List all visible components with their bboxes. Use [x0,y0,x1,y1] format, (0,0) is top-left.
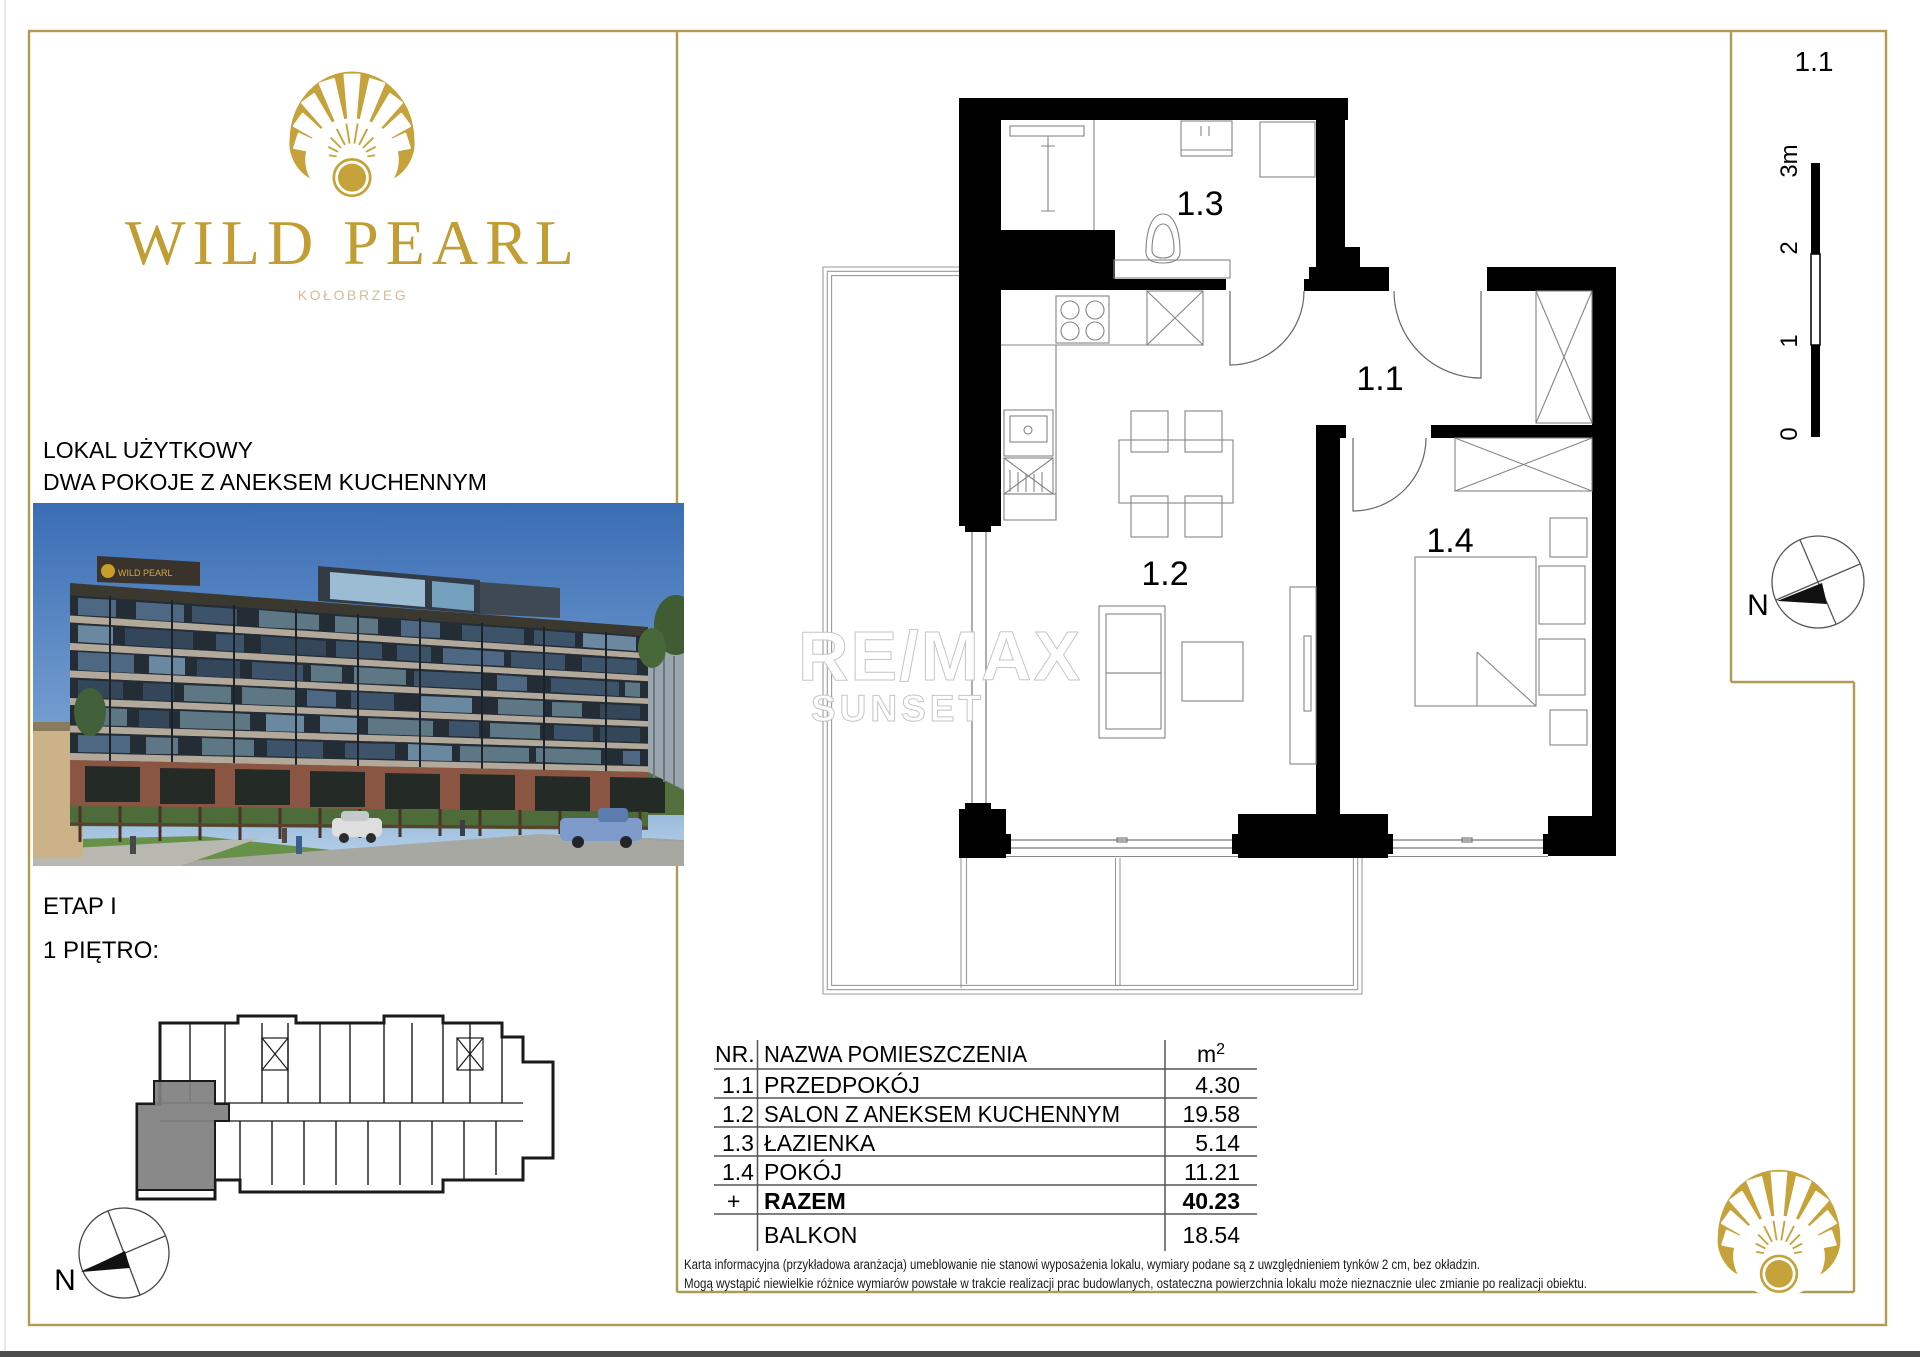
svg-text:1: 1 [1776,334,1803,347]
svg-text:1.2: 1.2 [1141,555,1188,593]
svg-text:Karta informacyjna (przykładow: Karta informacyjna (przykładowa aranżacj… [684,1257,1480,1272]
svg-text:WILD PEARL: WILD PEARL [125,207,581,278]
svg-text:SUNSET: SUNSET [811,688,985,729]
svg-text:0: 0 [1776,427,1803,440]
svg-text:1.1: 1.1 [1356,360,1403,398]
svg-text:1.3: 1.3 [1176,185,1223,223]
svg-text:RE/MAX: RE/MAX [798,617,1082,695]
svg-text:18.54: 18.54 [1182,1222,1240,1248]
svg-text:2: 2 [1776,241,1803,254]
svg-text:LOKAL UŻYTKOWY: LOKAL UŻYTKOWY [43,437,253,463]
svg-text:WILD PEARL: WILD PEARL [118,568,173,578]
svg-text:1.1: 1.1 [1795,46,1834,77]
svg-text:5.14: 5.14 [1195,1130,1240,1156]
svg-text:ETAP I: ETAP I [43,893,117,920]
svg-text:KOŁOBRZEG: KOŁOBRZEG [298,287,409,303]
svg-text:N: N [1747,589,1769,622]
svg-text:Mogą wystąpić niewielkie różni: Mogą wystąpić niewielkie różnice wymiaró… [684,1276,1587,1291]
svg-text:DWA POKOJE Z ANEKSEM KUCHENNYM: DWA POKOJE Z ANEKSEM KUCHENNYM [43,469,487,495]
svg-text:4.30: 4.30 [1195,1072,1240,1098]
svg-text:1.1: 1.1 [722,1072,754,1098]
svg-text:NAZWA POMIESZCZENIA: NAZWA POMIESZCZENIA [764,1041,1028,1067]
svg-text:1 PIĘTRO:: 1 PIĘTRO: [43,937,159,964]
svg-text:PRZEDPOKÓJ: PRZEDPOKÓJ [764,1072,920,1098]
svg-text:NR.: NR. [715,1041,755,1067]
svg-text:3m: 3m [1776,144,1803,177]
svg-text:1.2: 1.2 [722,1101,754,1127]
svg-text:+: + [727,1188,740,1214]
svg-text:BALKON: BALKON [764,1222,857,1248]
svg-text:1.4: 1.4 [722,1159,754,1185]
svg-text:ŁAZIENKA: ŁAZIENKA [764,1130,876,1156]
svg-text:RAZEM: RAZEM [764,1188,846,1214]
svg-text:40.23: 40.23 [1182,1188,1240,1214]
svg-text:N: N [54,1264,76,1297]
svg-text:SALON Z ANEKSEM KUCHENNYM: SALON Z ANEKSEM KUCHENNYM [764,1101,1120,1127]
svg-text:11.21: 11.21 [1184,1159,1240,1185]
svg-text:1.4: 1.4 [1426,522,1473,560]
svg-text:19.58: 19.58 [1182,1101,1240,1127]
svg-text:POKÓJ: POKÓJ [764,1159,842,1185]
svg-text:1.3: 1.3 [722,1130,754,1156]
